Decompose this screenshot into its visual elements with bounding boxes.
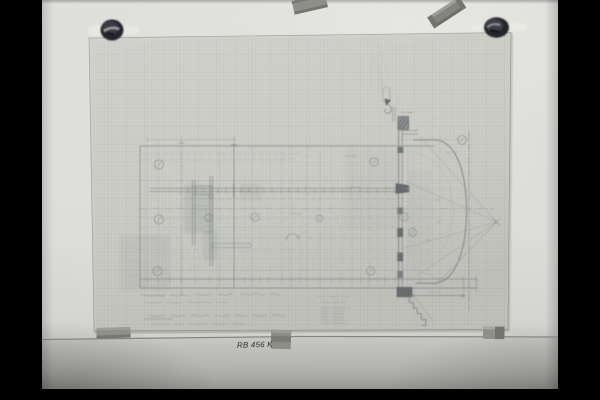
svg-text:RB 456 K: RB 456 K	[237, 340, 274, 350]
